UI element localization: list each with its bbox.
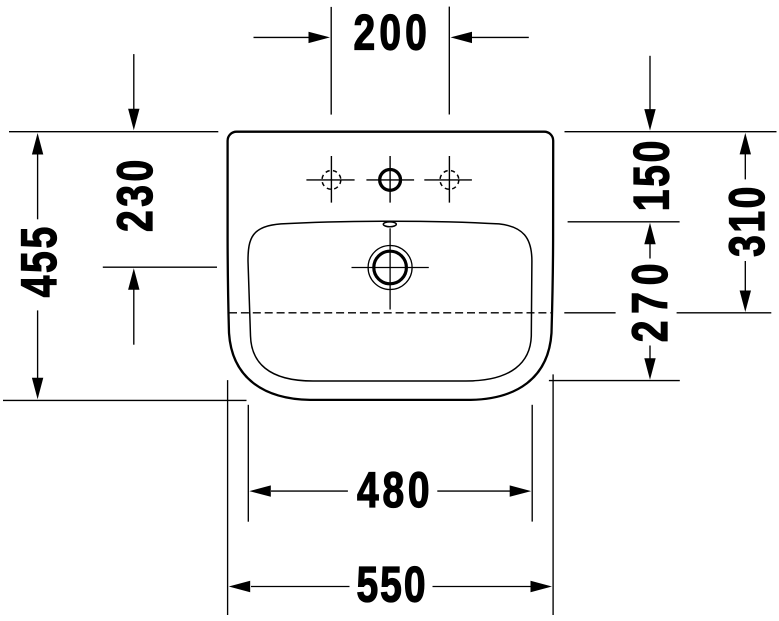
svg-text:230: 230 <box>106 160 163 232</box>
svg-text:200: 200 <box>354 4 427 61</box>
svg-text:480: 480 <box>357 461 430 518</box>
svg-text:455: 455 <box>10 227 67 298</box>
svg-text:550: 550 <box>356 556 425 613</box>
svg-text:270: 270 <box>621 264 678 343</box>
svg-text:310: 310 <box>718 187 775 257</box>
svg-text:150: 150 <box>623 141 680 212</box>
